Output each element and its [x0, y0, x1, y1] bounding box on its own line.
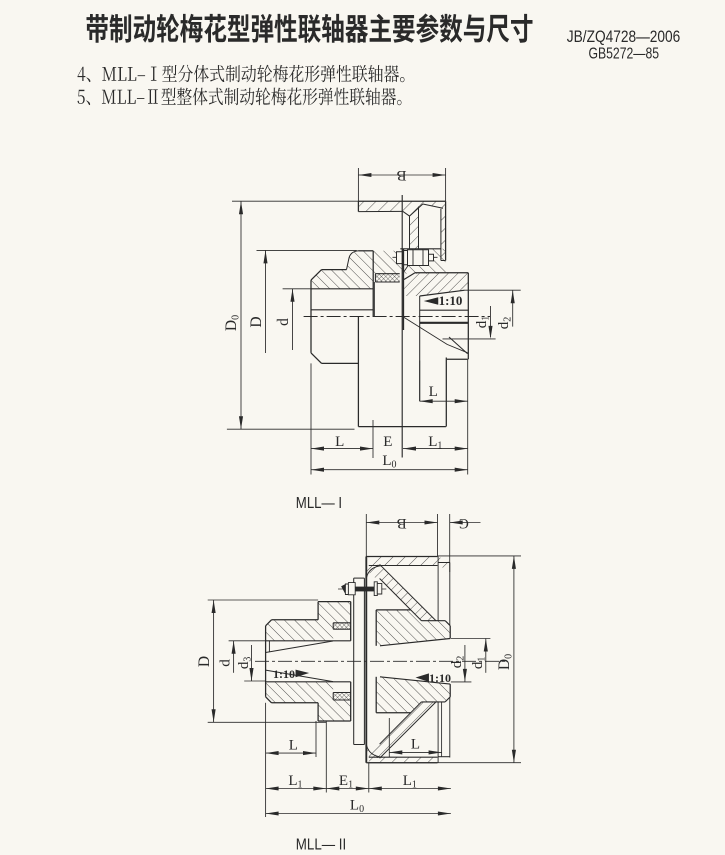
- svg-text:L1: L1: [428, 434, 442, 452]
- svg-text:E: E: [383, 434, 392, 450]
- svg-text:d: d: [218, 659, 234, 667]
- svg-text:JB/ZQ4728—2006: JB/ZQ4728—2006: [567, 28, 681, 46]
- svg-text:D0: D0: [496, 654, 515, 670]
- svg-text:L0: L0: [350, 798, 364, 816]
- svg-text:MLL— II: MLL— II: [296, 837, 346, 854]
- svg-text:d1: d1: [470, 657, 488, 670]
- svg-text:L0: L0: [382, 453, 396, 471]
- svg-text:L: L: [335, 434, 344, 450]
- svg-text:d3: d3: [236, 657, 254, 670]
- svg-text:d1: d1: [474, 316, 492, 329]
- svg-text:L: L: [429, 384, 438, 400]
- svg-text:L1: L1: [403, 773, 417, 791]
- svg-text:1:10: 1:10: [429, 671, 451, 685]
- svg-text:L1: L1: [288, 773, 302, 791]
- svg-text:D: D: [248, 316, 265, 327]
- svg-text:E1: E1: [339, 773, 353, 791]
- svg-text:B: B: [396, 167, 406, 183]
- svg-text:C: C: [459, 515, 469, 531]
- svg-text:d2: d2: [449, 656, 467, 669]
- svg-text:L: L: [289, 738, 298, 754]
- svg-text:1:10: 1:10: [439, 293, 463, 308]
- svg-text:MLL— I: MLL— I: [296, 495, 342, 512]
- svg-text:1:10: 1:10: [273, 667, 295, 681]
- svg-text:d2: d2: [496, 317, 514, 330]
- svg-text:GB5272—85: GB5272—85: [589, 46, 660, 63]
- svg-text:B: B: [397, 515, 407, 531]
- svg-text:L: L: [411, 737, 420, 753]
- svg-text:D0: D0: [223, 315, 242, 331]
- svg-text:D: D: [196, 656, 213, 667]
- svg-text:d: d: [275, 318, 292, 326]
